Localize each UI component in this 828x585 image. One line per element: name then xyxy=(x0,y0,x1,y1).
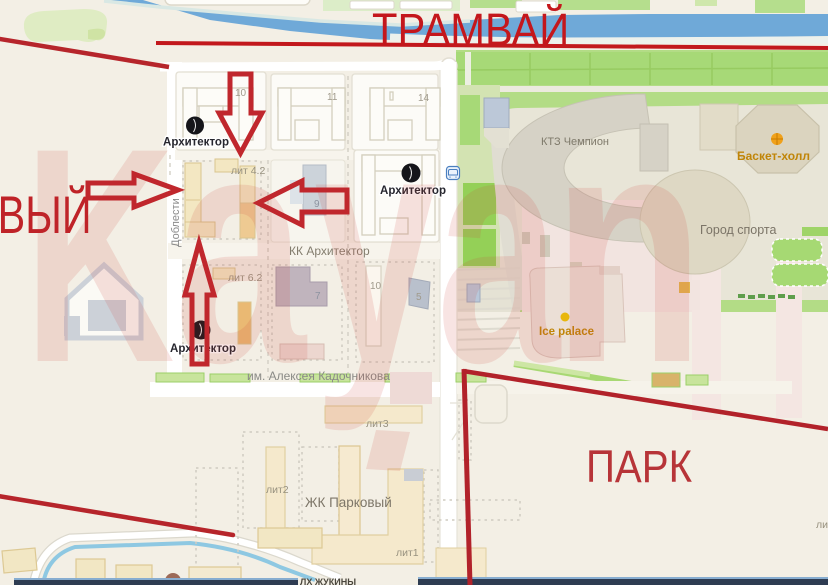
svg-text:ПАРК: ПАРК xyxy=(586,442,692,493)
svg-text:лит1: лит1 xyxy=(396,547,419,559)
svg-text:n: n xyxy=(552,65,704,431)
svg-text:лит2: лит2 xyxy=(266,484,289,496)
svg-text:ЛХ ЖУКИНЫ: ЛХ ЖУКИНЫ xyxy=(300,577,356,585)
svg-text:ЖК Парковый: ЖК Парковый xyxy=(305,495,392,510)
svg-text:a: a xyxy=(175,64,308,431)
svg-text:y: y xyxy=(314,59,438,434)
svg-text:ВЫЙ: ВЫЙ xyxy=(0,184,92,245)
svg-text:Баскет-холл: Баскет-холл xyxy=(737,149,810,163)
svg-text:лит: лит xyxy=(816,519,828,531)
svg-text:ТРАМВАЙ: ТРАМВАЙ xyxy=(372,5,569,56)
svg-text:K: K xyxy=(24,84,175,426)
svg-text:Город спорта: Город спорта xyxy=(700,223,777,237)
